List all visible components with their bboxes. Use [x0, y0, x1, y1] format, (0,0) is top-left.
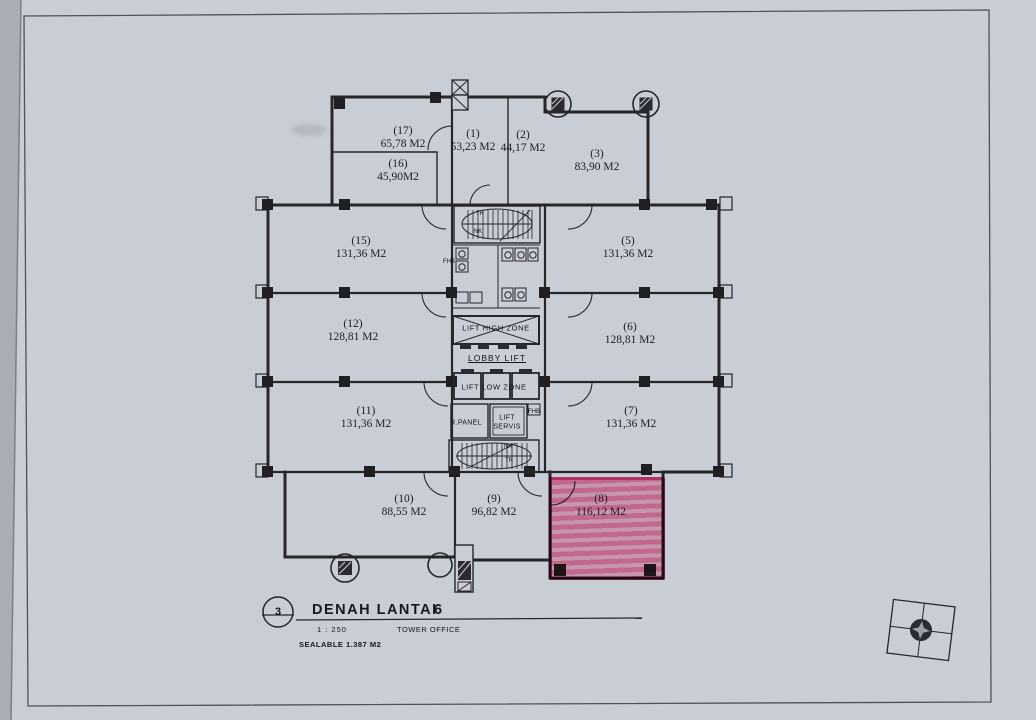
unit-number: (17) — [381, 125, 426, 138]
lobby-lift-label: LOBBY LIFT — [468, 353, 526, 363]
unit-label-15: (15) 131,36 M2 — [336, 235, 386, 261]
compass-icon — [887, 599, 955, 660]
drawing-title: DENAH LANTAI — [312, 602, 438, 618]
saleable-area: SEALABLE 1.387 M2 — [299, 640, 381, 649]
stair-bottom-tr-label: TR — [505, 458, 513, 464]
unit-area: 44,17 M2 — [501, 142, 546, 155]
shaft-bottom — [455, 545, 473, 592]
unit-area: 131,36 M2 — [603, 248, 653, 261]
stair-bottom-nk-label: NK — [504, 444, 512, 450]
unit-area: 53,23 M2 — [451, 141, 496, 154]
floor-number: 6 — [434, 602, 442, 618]
unit-area: 131,36 M2 — [341, 418, 391, 431]
unit-area: 83,90 M2 — [575, 161, 620, 174]
panel-room-label: R.PANEL — [450, 420, 482, 427]
unit-area: 116,12 M2 — [576, 506, 626, 519]
unit-number: (6) — [605, 321, 655, 334]
unit-number: (1) — [451, 128, 496, 141]
unit-area: 131,36 M2 — [336, 248, 386, 261]
lift-high-zone-box — [453, 316, 539, 349]
staircase-top — [454, 206, 540, 243]
unit-area: 128,81 M2 — [328, 331, 378, 344]
lift-service-label-1: LIFT — [499, 415, 515, 422]
toilet-block — [452, 245, 540, 308]
unit-number: (9) — [472, 493, 517, 506]
unit-number: (11) — [341, 405, 391, 418]
unit-label-5: (5) 131,36 M2 — [603, 235, 653, 261]
unit-number: (15) — [336, 235, 386, 248]
lift-service-label-2: SERVIS — [493, 424, 520, 431]
unit-label-10: (10) 88,55 M2 — [382, 493, 427, 519]
unit-label-1: (1) 53,23 M2 — [451, 128, 496, 154]
unit-number: (7) — [606, 405, 656, 418]
unit-area: 96,82 M2 — [472, 506, 517, 519]
unit-number: (12) — [328, 318, 378, 331]
unit-label-16: (16) 45,90M2 — [377, 158, 419, 184]
unit-area: 128,81 M2 — [605, 334, 655, 347]
lift-high-zone-label: LIFT HIGH ZONE — [462, 324, 529, 333]
unit-number: (3) — [575, 148, 620, 161]
unit-label-8-highlighted: (8) 116,12 M2 — [576, 493, 626, 519]
unit-number: (5) — [603, 235, 653, 248]
detail-number: 3 — [275, 606, 281, 618]
fhb-left-label: FHB — [443, 259, 455, 265]
unit-area: 45,90M2 — [377, 171, 419, 184]
drawing-scale: 1 : 250 — [317, 625, 347, 634]
unit-number: (2) — [501, 129, 546, 142]
unit-area: 88,55 M2 — [382, 506, 427, 519]
unit-area: 65,78 M2 — [381, 138, 426, 151]
unit-label-12: (12) 128,81 M2 — [328, 318, 378, 344]
stair-top-tr-label: TR — [476, 211, 484, 217]
fhb-right-label: FHB — [528, 409, 540, 415]
unit-label-7: (7) 131,36 M2 — [606, 405, 656, 431]
unit-number: (16) — [377, 158, 419, 171]
stair-top-nk-label: NK — [474, 229, 482, 235]
shaft-top — [452, 80, 468, 110]
unit-label-6: (6) 128,81 M2 — [605, 321, 655, 347]
paper-edge — [11, 0, 21, 720]
unit-label-17: (17) 65,78 M2 — [381, 125, 426, 151]
unit-label-11: (11) 131,36 M2 — [341, 405, 391, 431]
unit-area: 131,36 M2 — [606, 418, 656, 431]
unit-number: (8) — [576, 493, 626, 506]
building-name: TOWER OFFICE — [397, 625, 460, 634]
unit-label-3: (3) 83,90 M2 — [575, 148, 620, 174]
scanned-floor-plan-page: (17) 65,78 M2 (16) 45,90M2 (1) 53,23 M2 … — [0, 0, 1036, 720]
unit-number: (10) — [382, 493, 427, 506]
lift-low-zone-label: LIFT LOW ZONE — [461, 383, 526, 392]
unit-label-9: (9) 96,82 M2 — [472, 493, 517, 519]
unit-label-2: (2) 44,17 M2 — [501, 129, 546, 155]
